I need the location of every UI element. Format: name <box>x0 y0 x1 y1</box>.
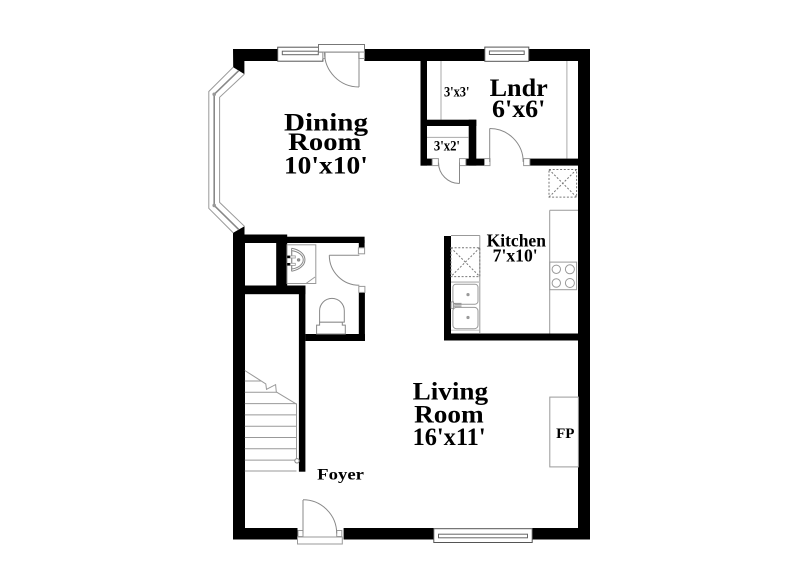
svg-text:7'x10': 7'x10' <box>493 246 538 266</box>
svg-text:Foyer: Foyer <box>317 466 364 483</box>
svg-text:FP: FP <box>556 426 574 442</box>
svg-text:3'x3': 3'x3' <box>444 84 470 100</box>
svg-text:10'x10': 10'x10' <box>284 153 368 180</box>
svg-text:16'x11': 16'x11' <box>413 424 486 451</box>
svg-text:6'x6': 6'x6' <box>492 96 545 123</box>
svg-text:3'x2': 3'x2' <box>434 138 460 154</box>
